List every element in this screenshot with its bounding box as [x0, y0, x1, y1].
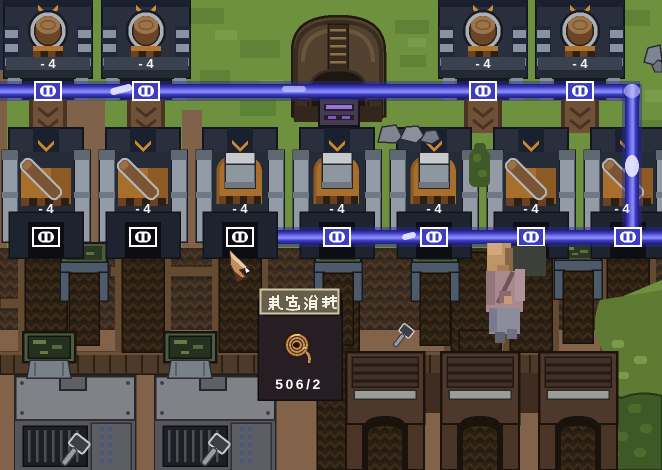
svg-text:- 4: - 4 — [232, 201, 248, 216]
svg-text:- 4: - 4 — [38, 201, 54, 216]
svg-text:- 4: - 4 — [523, 201, 539, 216]
svg-text:- 4: - 4 — [138, 56, 154, 71]
svg-text:- 4: - 4 — [426, 201, 442, 216]
svg-text:- 4: - 4 — [40, 56, 56, 71]
svg-text:506/2: 506/2 — [275, 376, 323, 392]
svg-text:- 4: - 4 — [572, 56, 588, 71]
svg-text:- 4: - 4 — [135, 201, 151, 216]
svg-text:- 4: - 4 — [329, 201, 345, 216]
svg-text:- 4: - 4 — [475, 56, 491, 71]
svg-text:- 4: - 4 — [614, 201, 630, 216]
